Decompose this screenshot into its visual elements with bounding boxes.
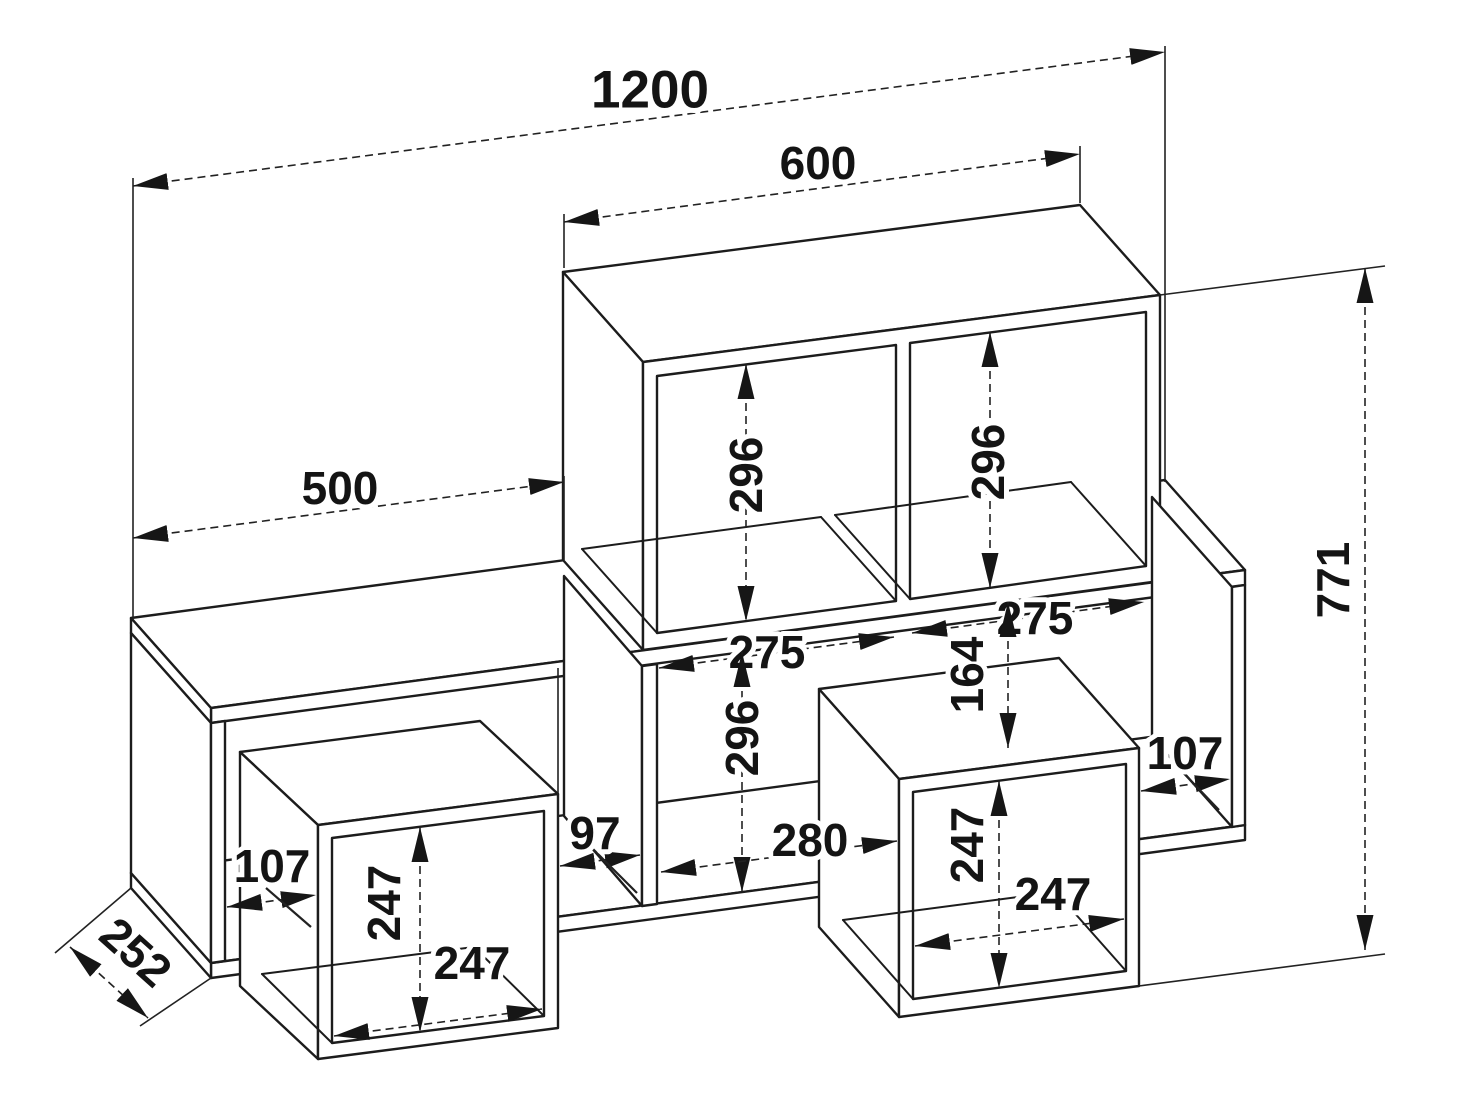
dim-label-top-right-height: 296 <box>962 424 1014 501</box>
dim-left-shelf-width-500: 500 <box>133 462 564 560</box>
dim-label-right-cube-offset: 164 <box>941 636 993 713</box>
dim-label-middle-width: 280 <box>772 814 849 866</box>
dim-label-middle-height: 296 <box>716 700 768 777</box>
dim-label-overall-height: 771 <box>1307 542 1359 619</box>
dim-label-right-gap: 107 <box>1147 727 1224 779</box>
shelf-drawing-canvas: 1200 600 500 771 252 296 296 275 275 <box>0 0 1480 1110</box>
dim-label-left-shelf-width: 500 <box>302 462 379 514</box>
dim-label-overall-width: 1200 <box>591 61 709 120</box>
dim-label-top-left-width: 275 <box>729 626 806 678</box>
dim-label-right-cube-width: 247 <box>1015 868 1092 920</box>
right-panel-front-face <box>1232 585 1245 827</box>
dim-label-gap-97: 97 <box>569 807 620 859</box>
dim-label-left-cube-height: 247 <box>358 865 410 942</box>
top-box-left-opening <box>657 345 896 633</box>
dim-label-left-gap: 107 <box>234 840 311 892</box>
top-box <box>563 205 1160 650</box>
top-box-right-opening <box>910 312 1146 599</box>
technical-drawing-page: 1200 600 500 771 252 296 296 275 275 <box>0 0 1480 1110</box>
dim-label-top-box-width: 600 <box>780 137 857 189</box>
dim-label-top-left-height: 296 <box>720 437 772 514</box>
dim-label-right-cube-height: 247 <box>941 807 993 884</box>
left-panel-front-face <box>211 721 225 963</box>
dim-label-left-cube-width: 247 <box>434 937 511 989</box>
divider-front-face <box>642 664 657 906</box>
